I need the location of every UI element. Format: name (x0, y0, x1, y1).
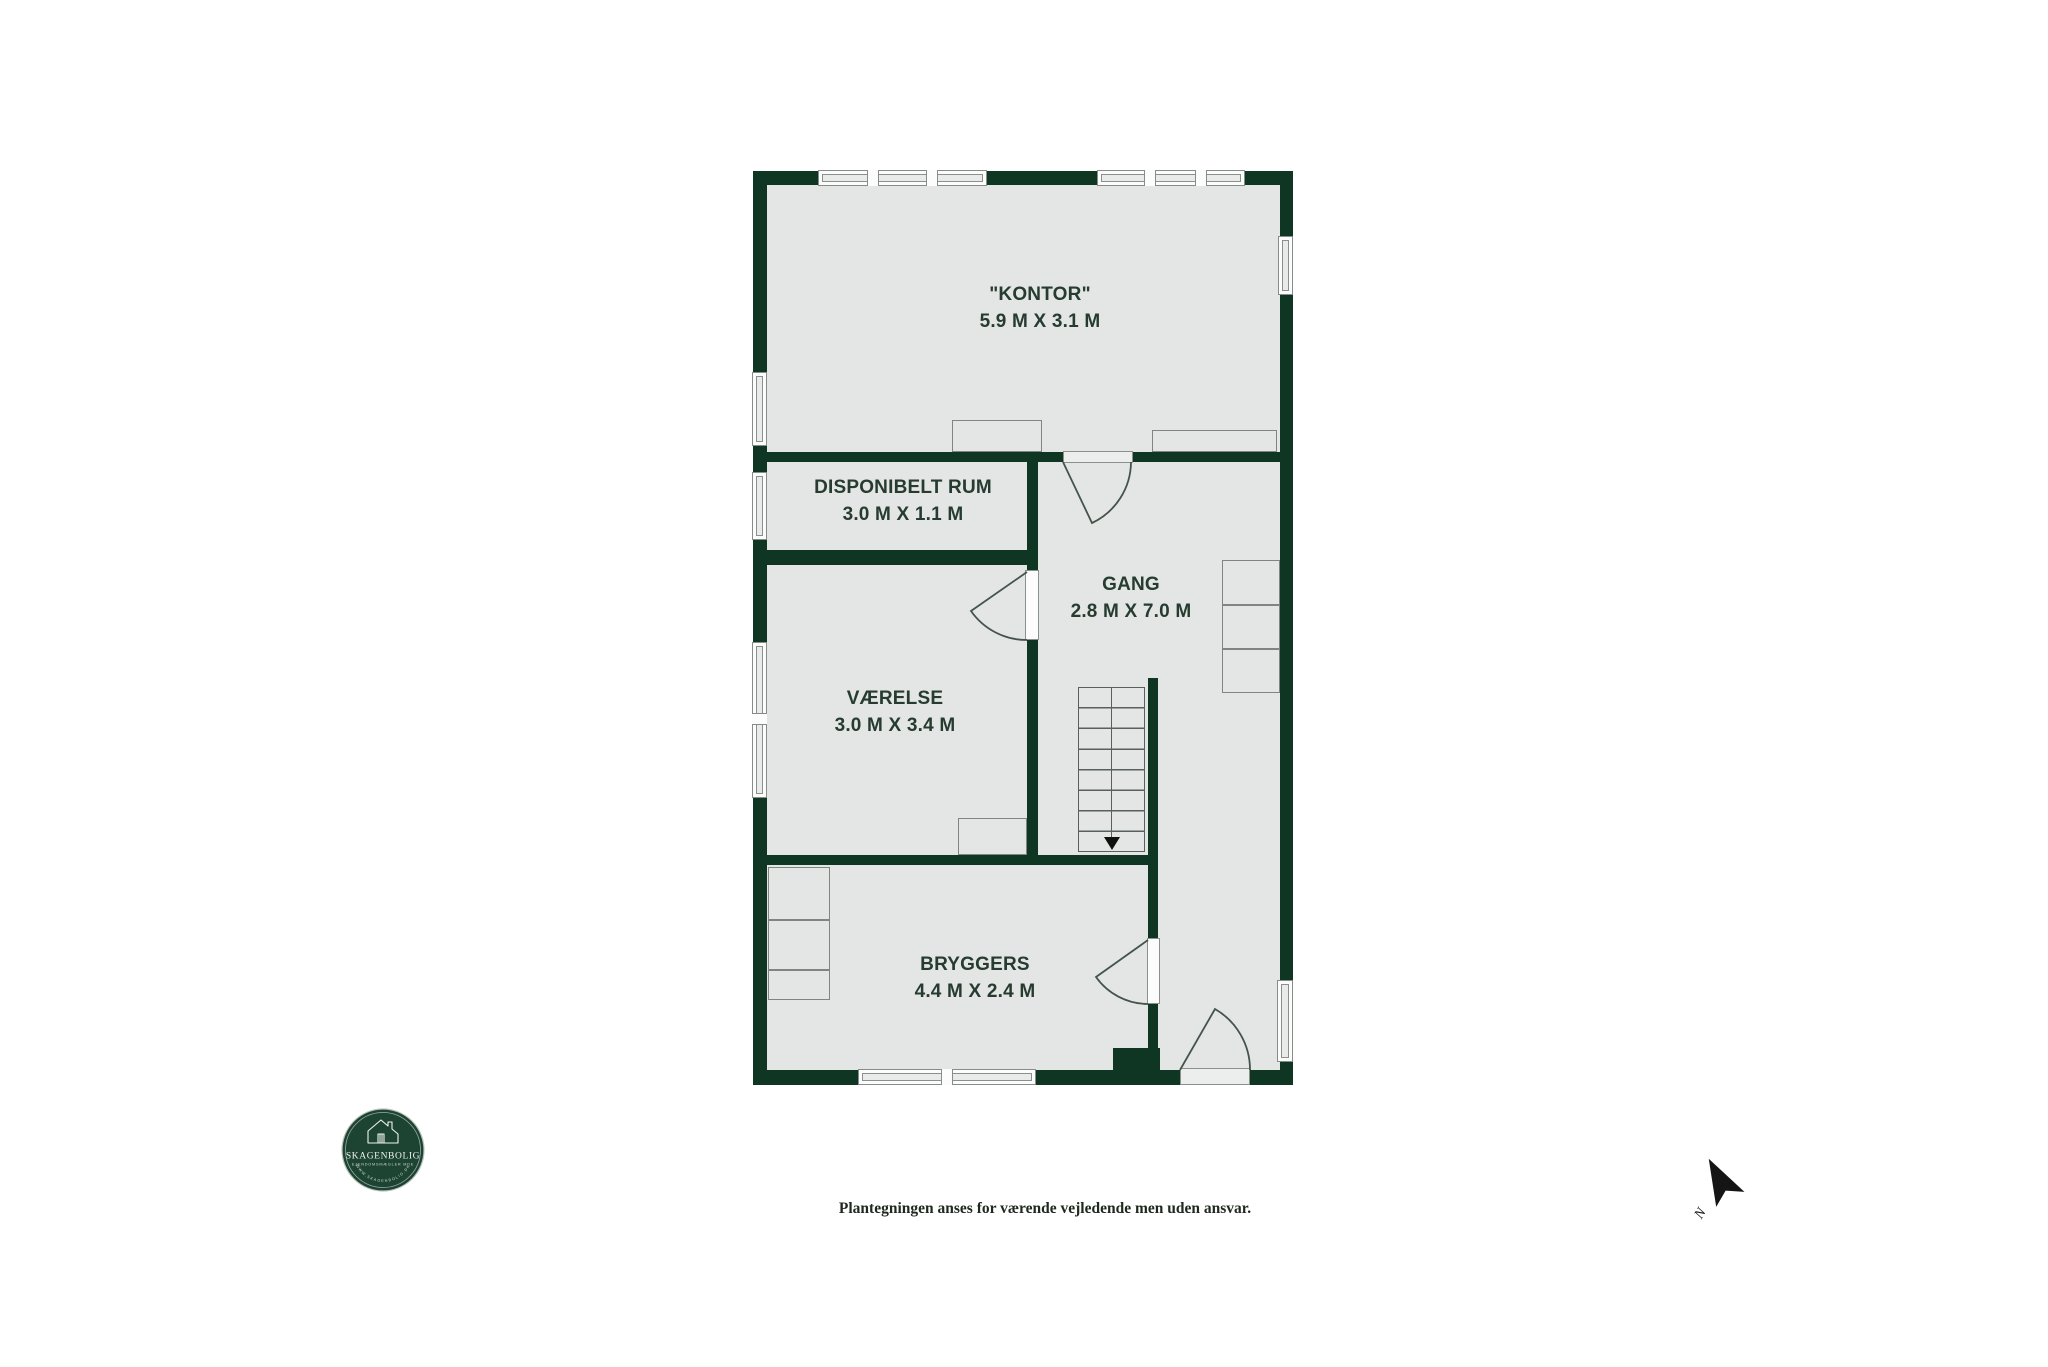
window (752, 642, 767, 798)
room-label-gang: GANG 2.8 M X 7.0 M (1071, 571, 1192, 625)
shelf-divider (1222, 648, 1280, 650)
room-name: VÆRELSE (835, 685, 956, 712)
window (1278, 236, 1293, 295)
window-divider (926, 170, 938, 186)
furniture-kontor-counter (1152, 430, 1277, 452)
room-dims: 5.9 M X 3.1 M (980, 308, 1101, 335)
counter-divider (768, 969, 830, 971)
furniture-gang-shelf (1222, 560, 1280, 693)
shelf-divider (1222, 604, 1280, 606)
window-frame (1281, 984, 1289, 1058)
wall-segment (753, 855, 1158, 865)
window-frame (1282, 240, 1289, 291)
room-name: "KONTOR" (980, 281, 1101, 308)
staircase-rail (1111, 688, 1113, 841)
room-dims: 4.4 M X 2.4 M (915, 978, 1036, 1005)
wall-segment (1148, 1002, 1158, 1052)
staircase (1078, 687, 1145, 852)
window-divider (1144, 170, 1156, 186)
wall-segment (1148, 678, 1158, 938)
window (858, 1069, 1036, 1085)
wall-segment (1027, 462, 1038, 478)
wall-segment (1027, 547, 1038, 570)
wall-segment (753, 550, 1038, 565)
wall-segment (1027, 640, 1038, 865)
room-dims: 3.0 M X 1.1 M (814, 501, 992, 528)
room-name: DISPONIBELT RUM (814, 474, 992, 501)
furniture-vaerelse-dresser (958, 818, 1027, 855)
room-name: BRYGGERS (915, 951, 1036, 978)
window-frame (756, 476, 763, 536)
window (1097, 170, 1245, 186)
window (752, 472, 767, 540)
window-divider (941, 1069, 953, 1085)
north-arrow-icon: N (1690, 1152, 1760, 1224)
north-arrow-needle (1695, 1152, 1745, 1207)
disclaimer-text: Plantegningen anses for værende vejleden… (645, 1200, 1445, 1218)
room-name: GANG (1071, 571, 1192, 598)
window-frame (822, 174, 983, 182)
window (1277, 980, 1293, 1062)
room-label-vaerelse: VÆRELSE 3.0 M X 3.4 M (835, 685, 956, 739)
door-threshold-entrance (1180, 1068, 1250, 1085)
staircase-down-arrow-icon (1104, 837, 1120, 850)
wall-segment (753, 452, 1063, 462)
furniture-bryggers-counter (768, 867, 830, 1000)
brand-logo: SKAGENBOLIG EJENDOMSMÆGLER MDE WWW.SKAGE… (340, 1107, 426, 1193)
logo-tagline-text: EJENDOMSMÆGLER MDE (352, 1163, 414, 1167)
wall-segment (1133, 452, 1293, 462)
north-label: N (1691, 1205, 1710, 1222)
wall-segment (1113, 1048, 1160, 1085)
window (818, 170, 987, 186)
furniture-kontor-dresser (952, 420, 1042, 452)
door-leaf-bryggers (1147, 938, 1160, 1004)
window-divider (752, 713, 767, 725)
door-threshold-kontor (1063, 451, 1133, 463)
room-label-kontor: "KONTOR" 5.9 M X 3.1 M (980, 281, 1101, 335)
window-frame (756, 376, 763, 442)
logo-brand-text: SKAGENBOLIG (346, 1152, 420, 1162)
floor-plan-page: "KONTOR" 5.9 M X 3.1 M DISPONIBELT RUM 3… (0, 0, 2048, 1367)
counter-divider (768, 919, 830, 921)
room-dims: 3.0 M X 3.4 M (835, 712, 956, 739)
room-label-bryggers: BRYGGERS 4.4 M X 2.4 M (915, 951, 1036, 1005)
window-divider (1195, 170, 1207, 186)
window-divider (867, 170, 879, 186)
room-label-disponibelt: DISPONIBELT RUM 3.0 M X 1.1 M (814, 474, 992, 528)
window-frame (1101, 174, 1241, 182)
window (752, 372, 767, 446)
door-leaf-vaerelse (1025, 570, 1039, 640)
room-dims: 2.8 M X 7.0 M (1071, 598, 1192, 625)
